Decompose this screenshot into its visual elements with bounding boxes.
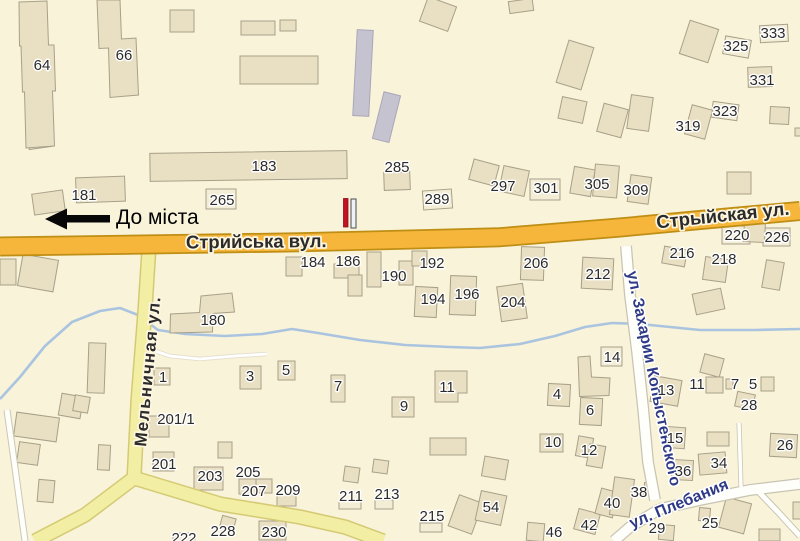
svg-text:215: 215 xyxy=(419,508,444,525)
svg-text:220: 220 xyxy=(724,227,749,244)
svg-text:До міста: До міста xyxy=(116,206,199,229)
svg-text:181: 181 xyxy=(71,187,96,204)
svg-text:25: 25 xyxy=(702,515,719,532)
svg-text:12: 12 xyxy=(581,442,598,459)
svg-text:10: 10 xyxy=(545,434,562,451)
svg-text:54: 54 xyxy=(483,499,500,516)
svg-text:9: 9 xyxy=(400,398,408,415)
svg-text:13: 13 xyxy=(658,382,675,399)
svg-text:194: 194 xyxy=(420,291,445,308)
svg-text:66: 66 xyxy=(116,47,133,64)
svg-text:309: 309 xyxy=(623,182,648,199)
svg-text:192: 192 xyxy=(419,255,444,272)
svg-text:323: 323 xyxy=(712,103,737,120)
svg-text:206: 206 xyxy=(523,255,548,272)
svg-text:3: 3 xyxy=(246,368,254,385)
svg-text:5: 5 xyxy=(282,362,290,379)
svg-text:205: 205 xyxy=(235,464,260,481)
svg-text:226: 226 xyxy=(764,229,789,246)
svg-text:319: 319 xyxy=(675,118,700,135)
svg-text:180: 180 xyxy=(200,312,225,329)
svg-text:5: 5 xyxy=(749,376,757,393)
svg-text:15: 15 xyxy=(667,430,684,447)
svg-text:7: 7 xyxy=(334,378,342,395)
svg-text:209: 209 xyxy=(275,482,300,499)
svg-text:42: 42 xyxy=(581,517,598,534)
svg-text:333: 333 xyxy=(760,25,785,42)
svg-text:213: 213 xyxy=(374,486,399,503)
svg-text:297: 297 xyxy=(490,178,515,195)
svg-text:218: 218 xyxy=(711,251,736,268)
svg-text:7: 7 xyxy=(731,376,739,393)
svg-text:29: 29 xyxy=(649,520,666,537)
svg-text:207: 207 xyxy=(241,483,266,500)
svg-text:204: 204 xyxy=(500,294,525,311)
svg-text:4: 4 xyxy=(553,386,561,403)
svg-text:222: 222 xyxy=(171,530,196,541)
svg-text:289: 289 xyxy=(424,191,449,208)
svg-text:265: 265 xyxy=(209,192,234,209)
svg-text:14: 14 xyxy=(604,349,621,366)
svg-text:325: 325 xyxy=(723,38,748,55)
svg-text:36: 36 xyxy=(675,463,692,480)
svg-text:26: 26 xyxy=(777,437,794,454)
svg-text:28: 28 xyxy=(741,397,758,414)
svg-text:285: 285 xyxy=(384,159,409,176)
svg-text:305: 305 xyxy=(584,176,609,193)
svg-text:212: 212 xyxy=(585,266,610,283)
svg-text:38: 38 xyxy=(631,484,648,501)
svg-text:40: 40 xyxy=(604,495,621,512)
svg-text:6: 6 xyxy=(586,402,594,419)
svg-text:201: 201 xyxy=(151,456,176,473)
svg-text:201/1: 201/1 xyxy=(157,411,195,428)
svg-text:331: 331 xyxy=(749,72,774,89)
svg-text:196: 196 xyxy=(454,286,479,303)
svg-text:11: 11 xyxy=(439,379,455,396)
svg-text:211: 211 xyxy=(339,488,363,505)
svg-text:11: 11 xyxy=(689,376,705,393)
svg-text:186: 186 xyxy=(335,253,360,270)
svg-text:64: 64 xyxy=(34,57,51,74)
svg-text:190: 190 xyxy=(381,268,406,285)
svg-text:230: 230 xyxy=(261,524,286,541)
svg-text:46: 46 xyxy=(546,524,563,541)
svg-text:34: 34 xyxy=(711,455,728,472)
svg-text:Стрийська вул.: Стрийська вул. xyxy=(186,230,327,252)
svg-text:216: 216 xyxy=(669,245,694,262)
svg-text:1: 1 xyxy=(159,369,167,386)
svg-text:301: 301 xyxy=(533,180,558,197)
svg-text:184: 184 xyxy=(300,254,325,271)
svg-text:203: 203 xyxy=(197,468,222,485)
svg-text:228: 228 xyxy=(210,523,235,540)
svg-text:183: 183 xyxy=(251,158,276,175)
